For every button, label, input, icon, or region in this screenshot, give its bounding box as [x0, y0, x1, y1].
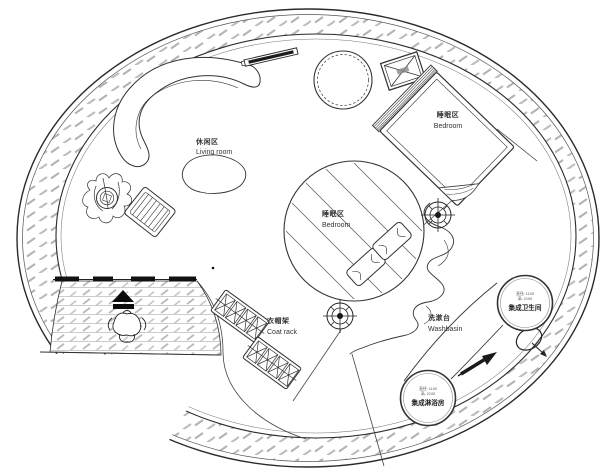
- coffee-table: [182, 155, 245, 194]
- bedroom-center-label-en: Bedroom: [322, 222, 351, 229]
- shower-pod-label: 集成淋浴房: [411, 398, 445, 407]
- plan-dot: [212, 267, 215, 270]
- round-table: [314, 51, 372, 109]
- bedroom-center-label-zh: 睡眠区: [322, 209, 345, 218]
- living-room-label-en: Living room: [196, 149, 232, 156]
- coat-rack-label-en: Coat rack: [267, 329, 297, 336]
- armchair: [124, 186, 176, 237]
- shower-pod-spec2: 高: 2100: [421, 391, 435, 396]
- floor-plan-drawing: 直径: 1100 高: 2100 集成卫生间 直径: 1100 高: 2100 …: [0, 0, 611, 473]
- crosshair-symbol: [421, 198, 455, 232]
- toilet-pod-label: 集成卫生间: [508, 303, 542, 312]
- shower-pod: 直径: 1100 高: 2100 集成淋浴房: [401, 371, 456, 426]
- toilet-pod: 直径: 1100 高: 2100 集成卫生间: [498, 276, 553, 331]
- coat-rack: [240, 335, 304, 391]
- plant: [83, 174, 132, 223]
- wall-shelf: [241, 48, 298, 67]
- living-room-label-zh: 休闲区: [195, 137, 219, 146]
- toilet-pod-spec1: 直径: 1100: [516, 291, 534, 296]
- washbasin-label-en: Washbasin: [428, 326, 462, 333]
- crosshair-symbol: [323, 299, 357, 333]
- coat-rack-label-zh: 衣帽架: [267, 316, 290, 325]
- ornament-squiggle-detail: [424, 240, 448, 324]
- toilet-pod-spec2: 高: 2100: [518, 296, 532, 301]
- floor-plan-page: 直径: 1100 高: 2100 集成卫生间 直径: 1100 高: 2100 …: [0, 0, 611, 473]
- bedroom-upper-label-en: Bedroom: [434, 123, 463, 130]
- washbasin-label-zh: 洗漱台: [428, 313, 451, 322]
- shower-pod-spec1: 直径: 1100: [419, 386, 437, 391]
- bedroom-upper-label-zh: 睡眠区: [437, 110, 460, 119]
- direction-arrow-icon: [458, 352, 497, 376]
